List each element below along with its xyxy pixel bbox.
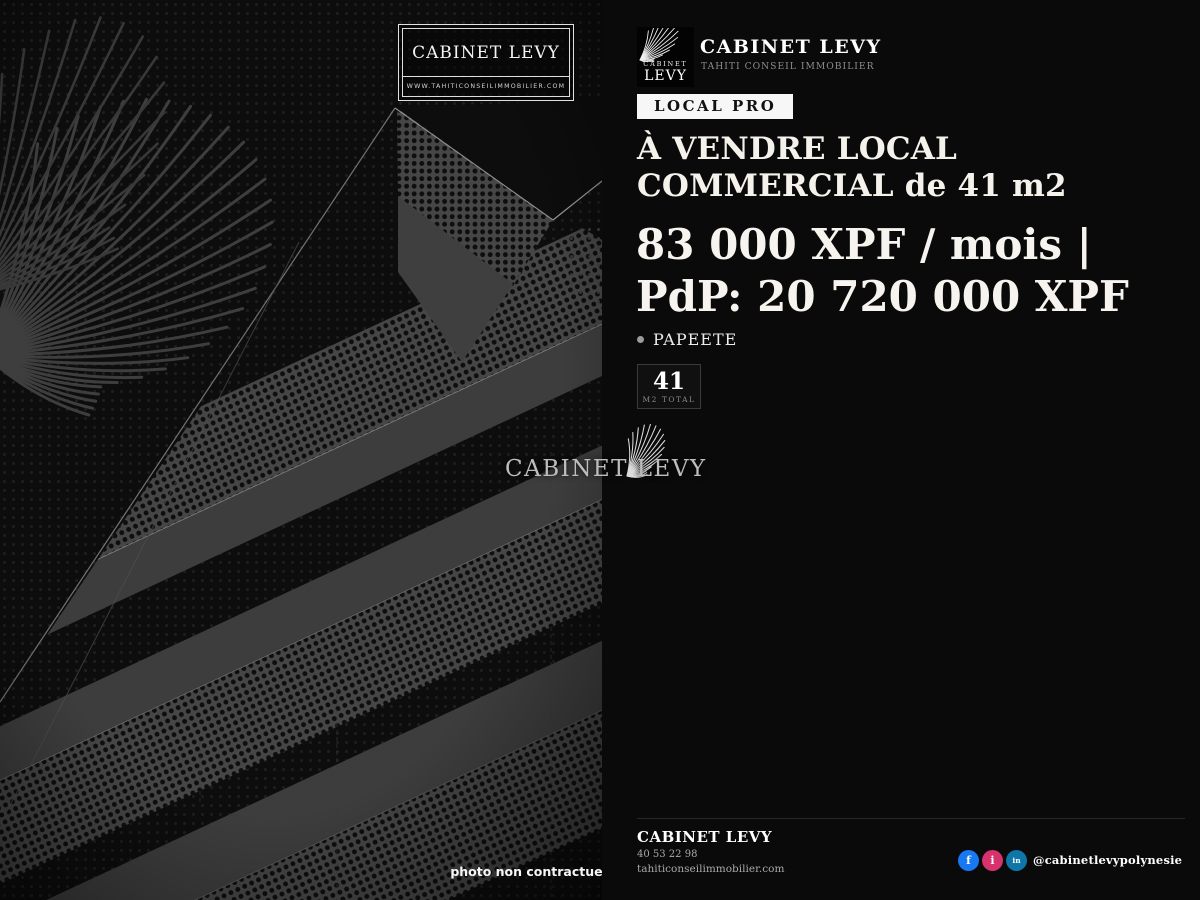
logo-box-title: CABINET LEVY [403,29,569,77]
brand-logo: CABINET LEVY [637,27,694,87]
listing-title: À VENDRE LOCAL COMMERCIAL de 41 m2 [637,131,1067,205]
area-badge: 41 M2 TOTAL [637,364,701,409]
photo-disclaimer: photo non contractuelle [430,864,602,879]
flyer: CABINET LEVY WWW.TAHITICONSEILIMMOBILIER… [0,0,1200,900]
instagram-icon-letter: i [990,854,994,867]
footer-website[interactable]: tahiticonseilimmobilier.com [637,863,784,875]
logo-levy-text: LEVY [637,68,694,84]
logo-cabinet-text: CABINET [637,60,694,68]
property-photo: CABINET LEVY WWW.TAHITICONSEILIMMOBILIER… [0,0,602,900]
photo-logo-box: CABINET LEVY WWW.TAHITICONSEILIMMOBILIER… [398,24,574,101]
linkedin-icon-letter: in [1012,856,1020,865]
title-line-1: À VENDRE LOCAL [637,131,1067,168]
facebook-icon-letter: f [966,854,971,867]
location-dot-icon [637,336,644,343]
area-value: 41 [638,369,700,395]
price-line-1: 83 000 XPF / mois | [636,219,1129,271]
price-line-2: PdP: 20 720 000 XPF [636,271,1129,323]
listing-price: 83 000 XPF / mois | PdP: 20 720 000 XPF [636,219,1129,323]
brand-name: CABINET LEVY [700,36,882,58]
footer-separator [637,818,1185,819]
location-row: PAPEETE [637,330,737,349]
building-facade-graphic [0,0,602,900]
social-handle[interactable]: @cabinetlevypolynesie [1033,853,1182,867]
footer-phone: 40 53 22 98 [637,849,697,860]
logo-box-url: WWW.TAHITICONSEILIMMOBILIER.COM [403,77,569,96]
instagram-icon[interactable]: i [982,850,1003,871]
category-badge: LOCAL PRO [637,94,793,119]
facebook-icon[interactable]: f [958,850,979,871]
area-label: M2 TOTAL [638,395,700,404]
palm-icon [637,28,694,62]
footer-brand: CABINET LEVY [637,828,772,846]
linkedin-icon[interactable]: in [1006,850,1027,871]
brand-subtitle: TAHITI CONSEIL IMMOBILIER [701,61,875,72]
location-name: PAPEETE [653,330,737,349]
listing-panel: CABINET LEVY CABINET LEVY TAHITI CONSEIL… [602,0,1200,900]
title-line-2: COMMERCIAL de 41 m2 [637,168,1067,205]
